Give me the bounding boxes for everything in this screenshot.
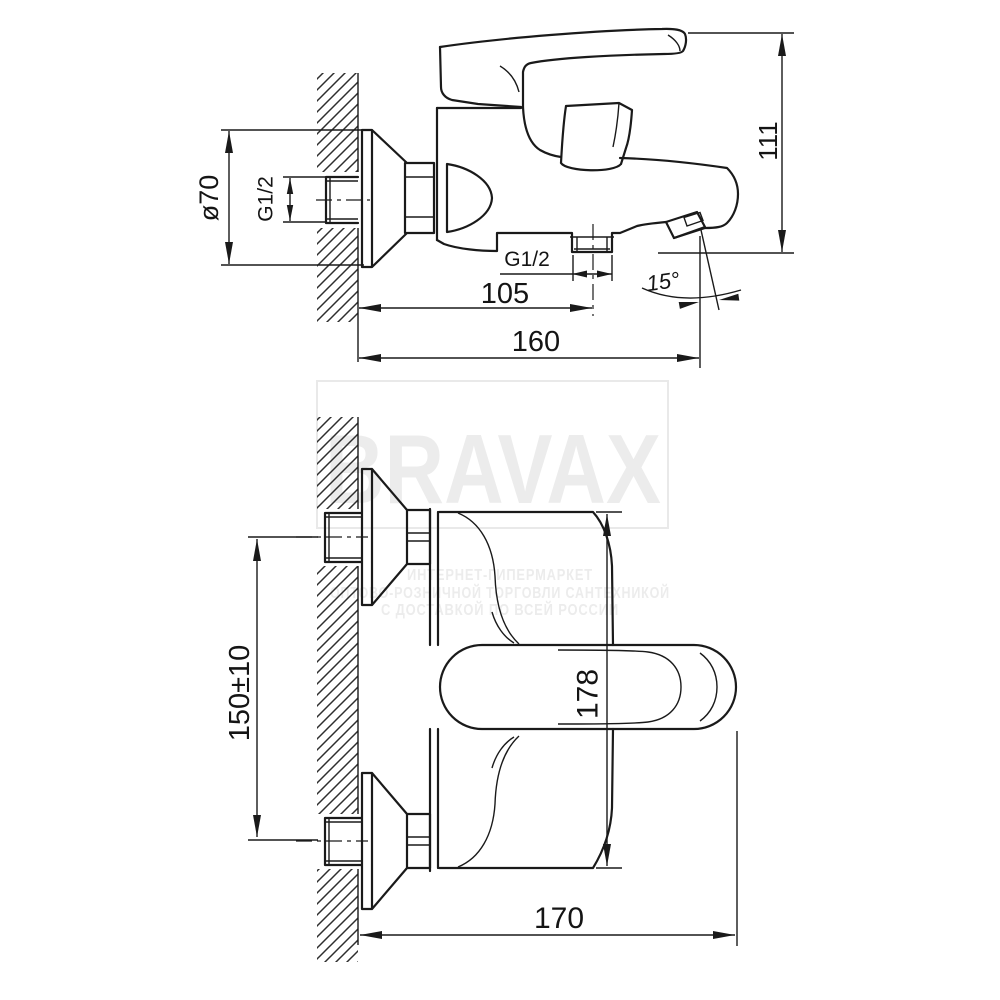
- faucet-body-side: [437, 29, 738, 252]
- wall-hatch-upper: [317, 73, 358, 172]
- dim-label-spout-angle: 15°: [645, 267, 682, 296]
- body-wall-plate: [430, 509, 438, 871]
- dim-wall-to-outlet: 105: [359, 224, 593, 316]
- faucet-dimension-drawing: BRAVAX ИНТЕРНЕТ-ГИПЕРМАРКЕТ ОПТОВО-РОЗНИ…: [0, 0, 1000, 1000]
- dim-label-wall-to-spout: 160: [512, 326, 560, 358]
- eccentric-flange-lower: [362, 773, 430, 909]
- dim-label-wall-thread: G1/2: [255, 176, 278, 222]
- flange-upper-facets: [407, 533, 430, 541]
- dim-hole-spacing: 150±10: [224, 537, 318, 840]
- wall-hatch-bottom: [317, 869, 358, 962]
- wall-hatch-middle: [317, 566, 358, 814]
- handle-tip-edge: [700, 653, 717, 721]
- side-view: ø70 G1/2 G1/2 105 160: [194, 29, 794, 368]
- technical-drawing-page: BRAVAX ИНТЕРНЕТ-ГИПЕРМАРКЕТ ОПТОВО-РОЗНИ…: [0, 0, 1000, 1000]
- diverter-knob-edge: [613, 103, 619, 147]
- lever-base: [440, 47, 521, 107]
- dim-body-width: 178: [572, 512, 623, 868]
- dim-wall-to-spout: 160: [359, 326, 699, 362]
- wall-hatch-lower: [317, 228, 358, 322]
- watermark: BRAVAX ИНТЕРНЕТ-ГИПЕРМАРКЕТ ОПТОВО-РОЗНИ…: [317, 381, 670, 619]
- dim-height: 111: [658, 33, 794, 253]
- flange-nut-facets: [405, 177, 434, 217]
- diverter-knob: [561, 103, 632, 170]
- dim-label-flange-diameter: ø70: [194, 175, 224, 222]
- dim-label-body-width: 178: [572, 669, 605, 719]
- outlet-thread-lines: [570, 237, 614, 252]
- watermark-tagline-1: ИНТЕРНЕТ-ГИПЕРМАРКЕТ: [407, 567, 593, 584]
- dim-label-hole-spacing: 150±10: [224, 645, 256, 742]
- wall-hatch-top: [317, 417, 358, 509]
- eccentric-flange-side: [362, 130, 434, 267]
- aerator-outline: [666, 212, 705, 238]
- watermark-brand: BRAVAX: [325, 414, 661, 524]
- dim-total-depth: 170: [360, 731, 737, 946]
- dim-label-height: 111: [753, 121, 783, 161]
- wall-section-side: [317, 73, 358, 362]
- dim-label-outlet-thread: G1/2: [504, 248, 550, 271]
- dim-wall-thread: G1/2: [255, 176, 328, 222]
- wall-section-plan: [317, 417, 358, 962]
- flange-lower-facets: [407, 837, 430, 845]
- flange-lower-outline: [362, 773, 430, 909]
- lever-handle-outline: [440, 29, 686, 107]
- dim-spout-angle: 15°: [642, 230, 741, 368]
- wall-pipe-lower: [296, 818, 368, 865]
- flange-outline: [362, 130, 434, 267]
- body-left-dome: [437, 108, 492, 240]
- body-top-outline: [437, 107, 738, 228]
- dim-label-wall-to-outlet: 105: [481, 278, 529, 310]
- dim-label-total-depth: 170: [534, 902, 584, 935]
